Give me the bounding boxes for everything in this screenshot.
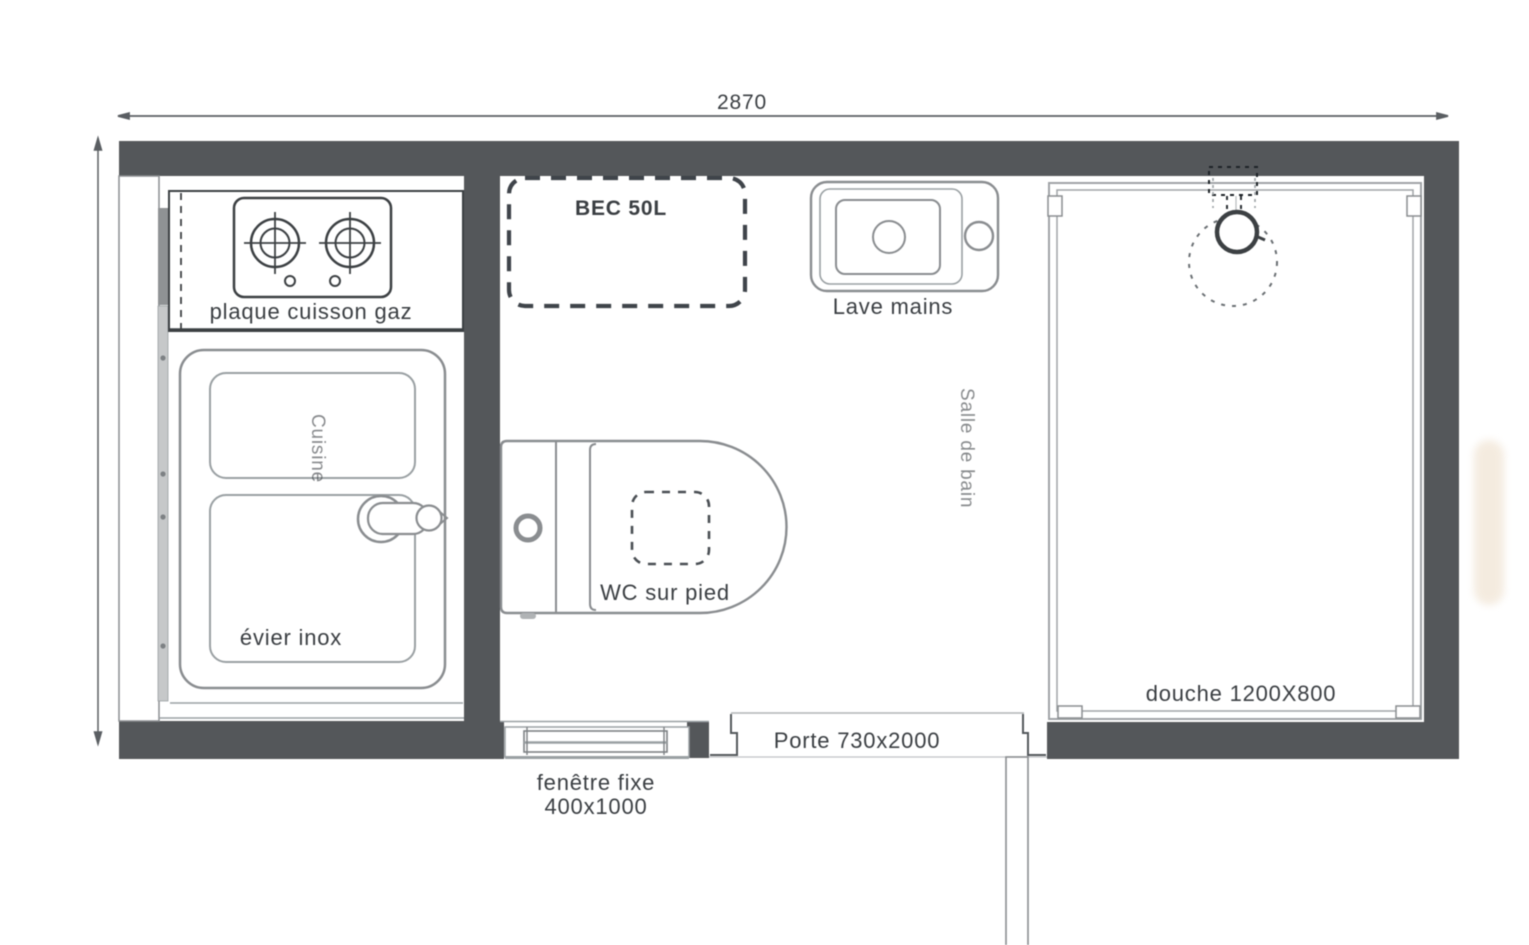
svg-text:2870: 2870 bbox=[717, 91, 767, 114]
svg-text:Porte 730x2000: Porte 730x2000 bbox=[774, 728, 941, 753]
svg-text:400x1000: 400x1000 bbox=[544, 794, 647, 819]
svg-text:Lave mains: Lave mains bbox=[833, 294, 954, 319]
svg-text:BEC 50L: BEC 50L bbox=[575, 197, 667, 220]
svg-text:douche 1200X800: douche 1200X800 bbox=[1146, 681, 1337, 706]
svg-text:fenêtre fixe: fenêtre fixe bbox=[537, 770, 655, 795]
svg-text:Salle de bain: Salle de bain bbox=[956, 388, 977, 508]
svg-text:évier inox: évier inox bbox=[240, 625, 342, 650]
svg-text:plaque cuisson gaz: plaque cuisson gaz bbox=[210, 299, 413, 324]
svg-text:Cuisine: Cuisine bbox=[307, 414, 328, 483]
svg-text:WC sur pied: WC sur pied bbox=[600, 580, 730, 605]
